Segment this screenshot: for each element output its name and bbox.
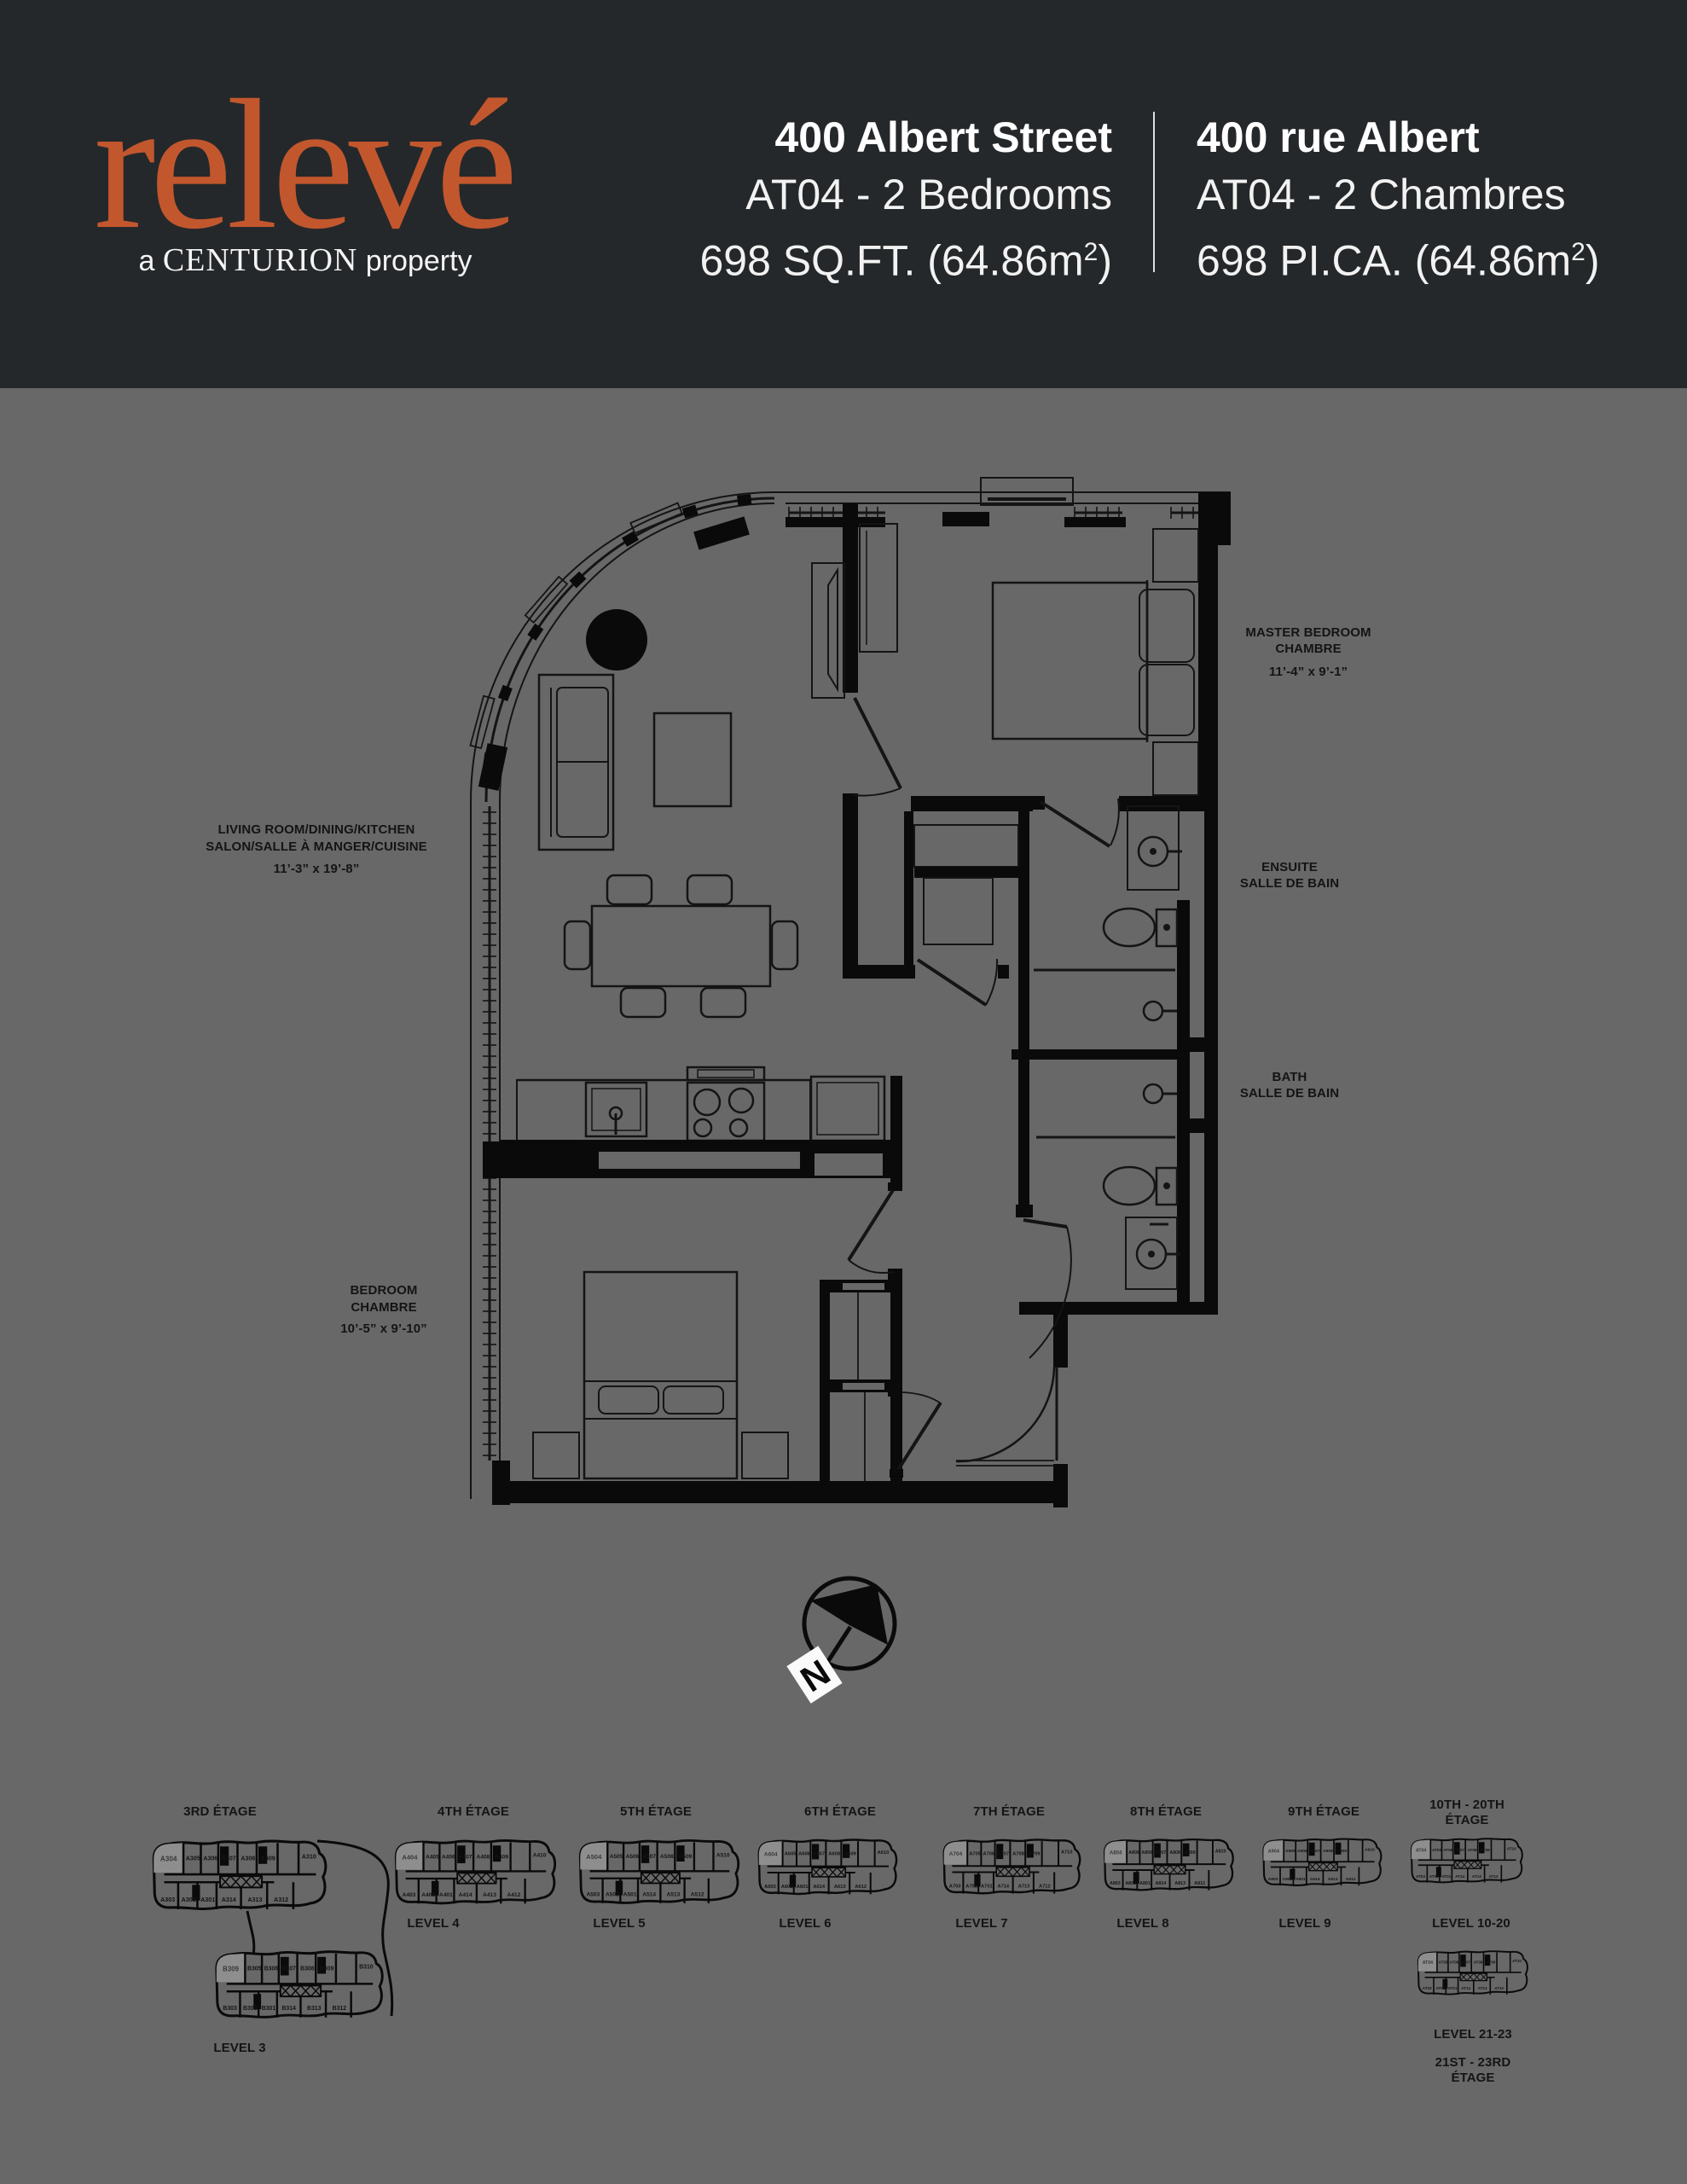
svg-text:A802: A802 (1125, 1881, 1136, 1886)
svg-text:A614: A614 (813, 1885, 825, 1890)
svg-text:A306: A306 (203, 1856, 217, 1862)
svg-text:AT04: AT04 (1416, 1848, 1427, 1853)
svg-text:LEVEL 6: LEVEL 6 (779, 1916, 831, 1931)
svg-text:B302: B302 (243, 2006, 258, 2012)
svg-text:A607: A607 (813, 1852, 825, 1857)
svg-text:LEVEL 5: LEVEL 5 (593, 1916, 645, 1931)
svg-text:A901: A901 (1296, 1877, 1306, 1882)
svg-text:LEVEL 10-20: LEVEL 10-20 (1432, 1916, 1510, 1931)
svg-text:A506: A506 (626, 1854, 640, 1860)
svg-text:AT01: AT01 (1448, 1986, 1458, 1990)
svg-text:A701: A701 (981, 1884, 993, 1889)
svg-text:B309: B309 (320, 1966, 334, 1972)
svg-text:B310: B310 (359, 1965, 374, 1971)
svg-text:A314: A314 (222, 1896, 236, 1903)
svg-text:A403: A403 (403, 1892, 416, 1898)
svg-text:A301: A301 (200, 1896, 215, 1903)
svg-text:A704: A704 (949, 1851, 963, 1857)
svg-text:A613: A613 (834, 1885, 846, 1890)
svg-text:A309: A309 (261, 1856, 275, 1862)
svg-text:A313: A313 (247, 1896, 262, 1903)
svg-text:A602: A602 (781, 1885, 793, 1890)
svg-text:A413: A413 (483, 1892, 496, 1898)
svg-text:AT02: AT02 (1435, 1986, 1445, 1990)
svg-text:A705: A705 (969, 1851, 981, 1856)
svg-text:A303: A303 (160, 1896, 175, 1903)
svg-text:AT03: AT03 (1416, 1874, 1425, 1879)
svg-text:A809: A809 (1185, 1850, 1196, 1856)
svg-text:A508: A508 (660, 1854, 674, 1860)
svg-text:AT10: AT10 (1507, 1846, 1516, 1850)
svg-text:11’-3” x 19’-8”: 11’-3” x 19’-8” (274, 862, 360, 876)
svg-text:A514: A514 (642, 1891, 656, 1897)
svg-text:AT13: AT13 (1472, 1874, 1481, 1879)
svg-text:B309: B309 (223, 1966, 239, 1973)
svg-text:AT04: AT04 (1423, 1960, 1433, 1966)
svg-text:A708: A708 (1012, 1851, 1024, 1856)
svg-text:A505: A505 (610, 1854, 623, 1860)
svg-text:AT06: AT06 (1443, 1848, 1452, 1852)
svg-text:LEVEL 9: LEVEL 9 (1278, 1916, 1330, 1931)
svg-text:A410: A410 (533, 1852, 547, 1858)
svg-text:4TH ÉTAGE: 4TH ÉTAGE (438, 1804, 509, 1819)
svg-text:AT03: AT03 (1423, 1986, 1432, 1990)
svg-text:A401: A401 (439, 1892, 453, 1898)
svg-text:AT08: AT08 (1468, 1848, 1477, 1852)
svg-text:A601: A601 (797, 1885, 809, 1890)
svg-text:A414: A414 (459, 1892, 472, 1898)
svg-text:11’-4” x 9’-1”: 11’-4” x 9’-1” (1269, 665, 1348, 679)
svg-text:A409: A409 (495, 1854, 508, 1860)
svg-text:AT10: AT10 (1512, 1959, 1522, 1963)
svg-text:B307: B307 (281, 1966, 296, 1972)
svg-text:A808: A808 (1169, 1850, 1180, 1856)
svg-text:BEDROOM: BEDROOM (350, 1283, 417, 1298)
svg-text:AT14: AT14 (1455, 1874, 1464, 1879)
svg-text:LIVING ROOM/DINING/KITCHEN: LIVING ROOM/DINING/KITCHEN (218, 822, 415, 837)
svg-text:A712: A712 (1039, 1884, 1051, 1889)
svg-text:A710: A710 (1061, 1850, 1073, 1856)
svg-text:AT14: AT14 (1461, 1986, 1470, 1990)
svg-text:A906: A906 (1297, 1849, 1307, 1854)
svg-text:A402: A402 (421, 1892, 435, 1898)
svg-text:A605: A605 (785, 1852, 797, 1857)
svg-text:A714: A714 (998, 1884, 1010, 1889)
svg-text:A909: A909 (1336, 1849, 1347, 1854)
svg-text:B306: B306 (264, 1966, 279, 1972)
svg-text:AT02: AT02 (1429, 1874, 1439, 1879)
svg-text:A813: A813 (1174, 1881, 1186, 1886)
svg-text:A307: A307 (222, 1856, 236, 1862)
svg-text:BATH: BATH (1272, 1070, 1307, 1084)
svg-text:A806: A806 (1141, 1850, 1152, 1856)
svg-text:A404: A404 (402, 1853, 418, 1861)
svg-text:B312: B312 (333, 2006, 347, 2012)
svg-text:SALLE DE BAIN: SALLE DE BAIN (1240, 1086, 1339, 1101)
svg-text:A512: A512 (691, 1891, 704, 1897)
svg-text:A912: A912 (1346, 1877, 1356, 1882)
svg-text:8TH ÉTAGE: 8TH ÉTAGE (1130, 1804, 1202, 1819)
svg-text:A713: A713 (1018, 1884, 1030, 1889)
svg-text:21ST - 23RD: 21ST - 23RD (1435, 2055, 1511, 2070)
svg-text:A507: A507 (642, 1854, 656, 1860)
svg-text:LEVEL 8: LEVEL 8 (1116, 1916, 1168, 1931)
svg-text:AT01: AT01 (1441, 1874, 1451, 1879)
svg-text:AT13: AT13 (1478, 1986, 1487, 1990)
svg-text:A604: A604 (764, 1851, 778, 1857)
svg-text:A609: A609 (844, 1852, 856, 1857)
svg-text:9TH ÉTAGE: 9TH ÉTAGE (1288, 1804, 1359, 1819)
svg-text:A513: A513 (667, 1891, 681, 1897)
svg-text:CHAMBRE: CHAMBRE (351, 1300, 416, 1315)
svg-text:A807: A807 (1155, 1850, 1166, 1856)
svg-text:A308: A308 (241, 1856, 255, 1862)
svg-text:CHAMBRE: CHAMBRE (1275, 642, 1341, 656)
svg-text:A509: A509 (679, 1854, 693, 1860)
svg-text:ÉTAGE: ÉTAGE (1445, 1813, 1488, 1827)
svg-text:3RD ÉTAGE: 3RD ÉTAGE (183, 1804, 257, 1819)
svg-text:A606: A606 (798, 1852, 810, 1857)
svg-text:AT12: AT12 (1494, 1986, 1504, 1990)
svg-text:A405: A405 (426, 1854, 439, 1860)
svg-text:AT06: AT06 (1450, 1960, 1459, 1965)
svg-text:LEVEL 3: LEVEL 3 (213, 2041, 265, 2055)
svg-text:A914: A914 (1310, 1877, 1320, 1882)
svg-text:A502: A502 (606, 1891, 619, 1897)
svg-text:A412: A412 (507, 1892, 520, 1898)
svg-text:B305: B305 (247, 1966, 262, 1972)
svg-text:A312: A312 (274, 1896, 288, 1903)
svg-text:A805: A805 (1128, 1850, 1139, 1856)
svg-text:A903: A903 (1268, 1877, 1278, 1882)
svg-text:AT07: AT07 (1455, 1848, 1464, 1852)
svg-text:A709: A709 (1029, 1851, 1041, 1856)
svg-text:A408: A408 (477, 1854, 490, 1860)
svg-text:10TH - 20TH: 10TH - 20TH (1429, 1798, 1504, 1812)
svg-text:A703: A703 (949, 1884, 961, 1889)
svg-text:A905: A905 (1285, 1849, 1296, 1854)
svg-text:A814: A814 (1155, 1881, 1166, 1886)
svg-text:A407: A407 (459, 1854, 472, 1860)
svg-text:A610: A610 (878, 1850, 890, 1856)
svg-text:A302: A302 (182, 1896, 196, 1903)
svg-text:AT09: AT09 (1481, 1848, 1490, 1852)
svg-text:A804: A804 (1110, 1850, 1122, 1856)
svg-text:10’-5” x 9’-10”: 10’-5” x 9’-10” (340, 1321, 427, 1336)
svg-text:A501: A501 (623, 1891, 637, 1897)
svg-text:B313: B313 (307, 2006, 322, 2012)
svg-text:AT05: AT05 (1439, 1960, 1448, 1965)
svg-text:SALON/SALLE À MANGER/CUISINE: SALON/SALLE À MANGER/CUISINE (206, 839, 426, 854)
svg-text:A706: A706 (983, 1851, 995, 1856)
svg-text:AT09: AT09 (1487, 1960, 1496, 1965)
svg-text:A707: A707 (998, 1851, 1010, 1856)
svg-text:SALLE DE BAIN: SALLE DE BAIN (1240, 876, 1339, 891)
svg-text:A810: A810 (1215, 1849, 1226, 1854)
svg-text:AT12: AT12 (1489, 1874, 1499, 1879)
svg-text:B301: B301 (262, 2006, 276, 2012)
svg-text:A812: A812 (1194, 1881, 1205, 1886)
svg-text:B314: B314 (281, 2006, 296, 2012)
svg-text:A310: A310 (302, 1854, 316, 1861)
svg-text:7TH ÉTAGE: 7TH ÉTAGE (973, 1804, 1045, 1819)
svg-text:LEVEL 4: LEVEL 4 (407, 1916, 460, 1931)
svg-text:B303: B303 (223, 2006, 237, 2012)
svg-text:A803: A803 (1110, 1881, 1121, 1886)
svg-text:ÉTAGE: ÉTAGE (1451, 2071, 1494, 2085)
svg-text:5TH ÉTAGE: 5TH ÉTAGE (620, 1804, 692, 1819)
svg-text:ENSUITE: ENSUITE (1261, 860, 1318, 874)
svg-text:A907: A907 (1310, 1849, 1320, 1854)
svg-text:6TH ÉTAGE: 6TH ÉTAGE (804, 1804, 876, 1819)
svg-text:A908: A908 (1323, 1849, 1333, 1854)
svg-text:A603: A603 (764, 1885, 776, 1890)
svg-text:A902: A902 (1283, 1877, 1293, 1882)
svg-text:A503: A503 (586, 1891, 600, 1897)
svg-text:A608: A608 (828, 1852, 840, 1857)
svg-text:AT07: AT07 (1461, 1960, 1470, 1965)
svg-text:MASTER BEDROOM: MASTER BEDROOM (1245, 625, 1371, 640)
svg-text:A702: A702 (965, 1884, 977, 1889)
svg-text:A304: A304 (160, 1856, 177, 1863)
svg-text:A510: A510 (716, 1852, 730, 1858)
svg-text:A406: A406 (442, 1854, 455, 1860)
svg-text:LEVEL 21-23: LEVEL 21-23 (1434, 2027, 1512, 2042)
svg-text:A612: A612 (855, 1885, 867, 1890)
svg-text:B308: B308 (300, 1966, 315, 1972)
svg-text:AT05: AT05 (1432, 1848, 1441, 1852)
svg-text:AT08: AT08 (1474, 1960, 1483, 1965)
svg-text:LEVEL 7: LEVEL 7 (955, 1916, 1007, 1931)
svg-text:A801: A801 (1139, 1881, 1151, 1886)
svg-text:A305: A305 (186, 1856, 200, 1862)
svg-text:A904: A904 (1268, 1850, 1280, 1855)
svg-text:A504: A504 (586, 1853, 602, 1861)
svg-text:A913: A913 (1328, 1877, 1338, 1882)
svg-text:A910: A910 (1365, 1848, 1375, 1853)
